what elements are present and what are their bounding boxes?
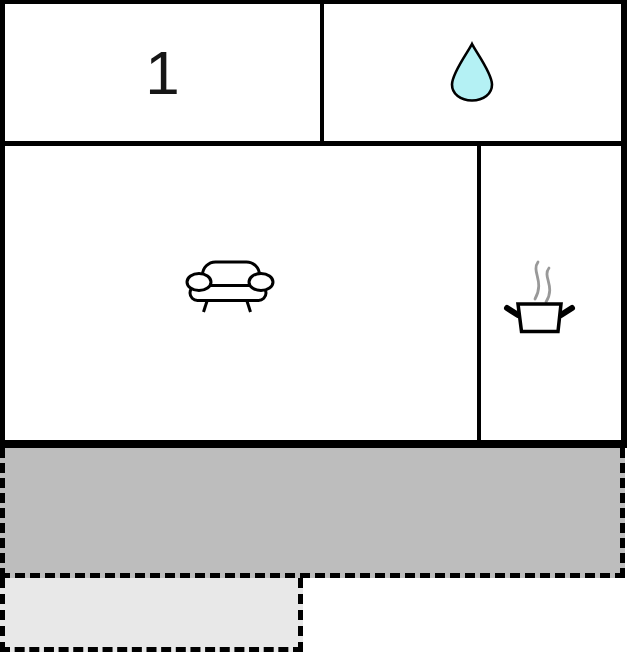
steam-line-right xyxy=(546,268,550,302)
pot-handle-right xyxy=(561,308,572,315)
water-drop-shape xyxy=(452,44,492,101)
steam-line-left xyxy=(535,262,539,299)
patio-area xyxy=(0,578,303,652)
sofa-armrest-left xyxy=(187,274,211,291)
terrace-area xyxy=(0,448,625,578)
sofa-armrest-right xyxy=(249,274,273,291)
floorplan: 1 xyxy=(0,0,627,652)
room-bedroom: 1 xyxy=(5,4,320,141)
pot-body xyxy=(518,304,561,332)
pot-handle-left xyxy=(507,308,518,315)
sofa-icon xyxy=(183,256,273,318)
cooking-pot-icon xyxy=(500,255,576,335)
room-number-label: 1 xyxy=(145,42,179,104)
water-drop-icon xyxy=(449,42,495,102)
